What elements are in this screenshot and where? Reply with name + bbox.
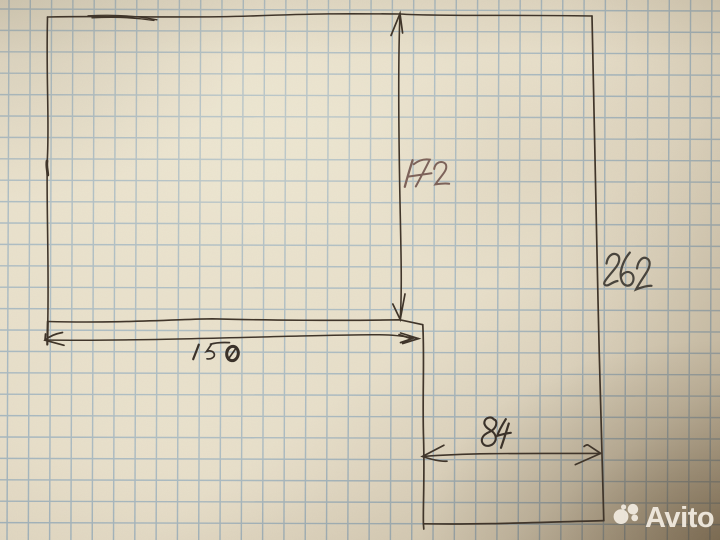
svg-text:Avito: Avito [645,502,714,534]
